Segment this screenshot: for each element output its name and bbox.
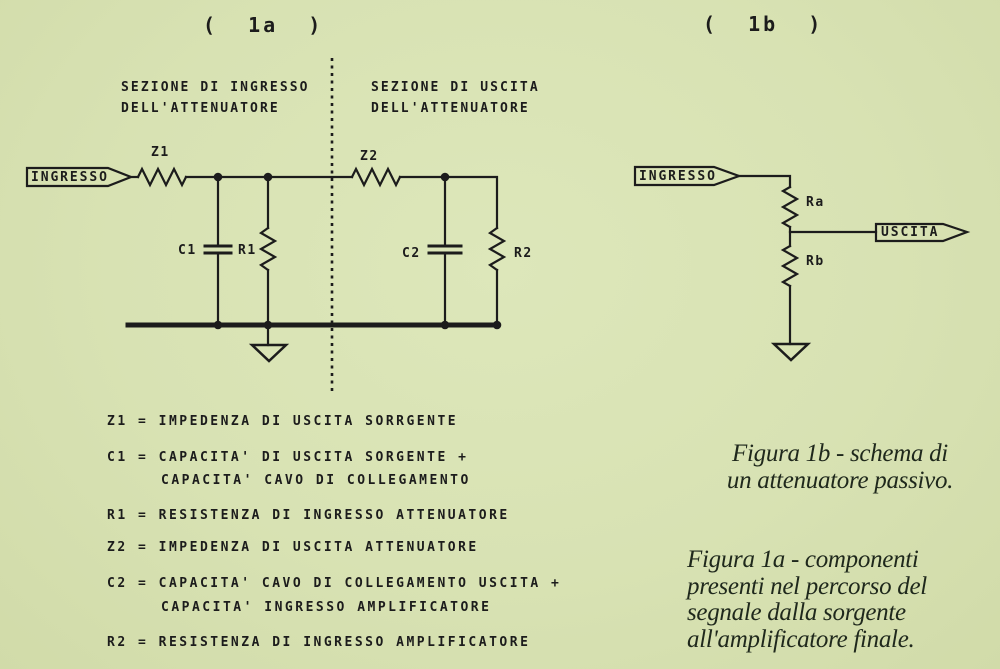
legend-row: Z2 = IMPEDENZA DI USCITA ATTENUATORE	[107, 541, 479, 554]
caption-1a-line1: Figura 1a - componenti	[687, 547, 927, 574]
caption-1b-line2: un attenuatore passivo.	[695, 468, 985, 495]
legend-row-continuation: CAPACITA' INGRESSO AMPLIFICATORE	[161, 601, 491, 614]
ingresso-tag-label-1a: INGRESSO	[31, 171, 109, 184]
wire-z2-to-r2	[400, 177, 497, 228]
label-r1: R1	[238, 244, 257, 257]
junction-dot	[214, 321, 223, 330]
figure-1b-title: ( 1b )	[703, 14, 823, 34]
output-section-label-line2: DELL'ATTENUATORE	[371, 102, 530, 115]
capacitor-c2	[429, 246, 461, 253]
junction-dot	[214, 173, 223, 182]
legend-row: C2 = CAPACITA' CAVO DI COLLEGAMENTO USCI…	[107, 577, 561, 590]
caption-figura-1b: Figura 1b - schema di un attenuatore pas…	[695, 441, 985, 494]
resistor-z2	[352, 169, 400, 185]
resistor-ra	[783, 187, 797, 227]
label-c2: C2	[402, 247, 421, 260]
resistor-r2	[490, 228, 504, 270]
legend-row-continuation: CAPACITA' CAVO DI COLLEGAMENTO	[161, 474, 471, 487]
label-r2: R2	[514, 247, 533, 260]
resistor-rb	[783, 246, 797, 286]
uscita-tag-label: USCITA	[881, 226, 939, 239]
junction-dot	[493, 321, 502, 330]
legend-row: C1 = CAPACITA' DI USCITA SORGENTE +	[107, 451, 468, 464]
label-ra: Ra	[806, 196, 825, 209]
junction-dot	[441, 173, 450, 182]
input-section-label-line1: SEZIONE DI INGRESSO	[121, 81, 310, 94]
label-c1: C1	[178, 244, 197, 257]
capacitor-c1	[205, 246, 231, 253]
caption-1b-line1: Figura 1b - schema di	[695, 441, 985, 468]
ground-icon-1a	[252, 345, 286, 361]
ingresso-tag-label-1b: INGRESSO	[639, 170, 717, 183]
output-section-label-line1: SEZIONE DI USCITA	[371, 81, 540, 94]
caption-figura-1a: Figura 1a - componenti presenti nel perc…	[687, 547, 927, 653]
junction-dot	[441, 321, 450, 330]
wire-ingresso-to-ra	[739, 176, 790, 187]
caption-1a-line4: all'amplificatore finale.	[687, 627, 927, 654]
legend-row: R1 = RESISTENZA DI INGRESSO ATTENUATORE	[107, 509, 510, 522]
scanned-schematic-page: ( 1a ) ( 1b ) SEZIONE DI INGRESSO DELL'A…	[0, 0, 1000, 669]
figure-1a-title: ( 1a )	[203, 15, 323, 35]
input-section-label-line2: DELL'ATTENUATORE	[121, 102, 280, 115]
junction-dot	[264, 173, 273, 182]
junction-dot	[264, 321, 273, 330]
resistor-z1	[138, 169, 186, 185]
label-z2: Z2	[360, 150, 379, 163]
caption-1a-line3: segnale dalla sorgente	[687, 600, 927, 627]
caption-1a-line2: presenti nel percorso del	[687, 574, 927, 601]
resistor-r1	[261, 228, 275, 270]
legend-row: Z1 = IMPEDENZA DI USCITA SORRGENTE	[107, 415, 458, 428]
legend-row: R2 = RESISTENZA DI INGRESSO AMPLIFICATOR…	[107, 636, 530, 649]
label-rb: Rb	[806, 255, 825, 268]
label-z1: Z1	[151, 146, 170, 159]
ground-icon-1b	[774, 344, 808, 360]
